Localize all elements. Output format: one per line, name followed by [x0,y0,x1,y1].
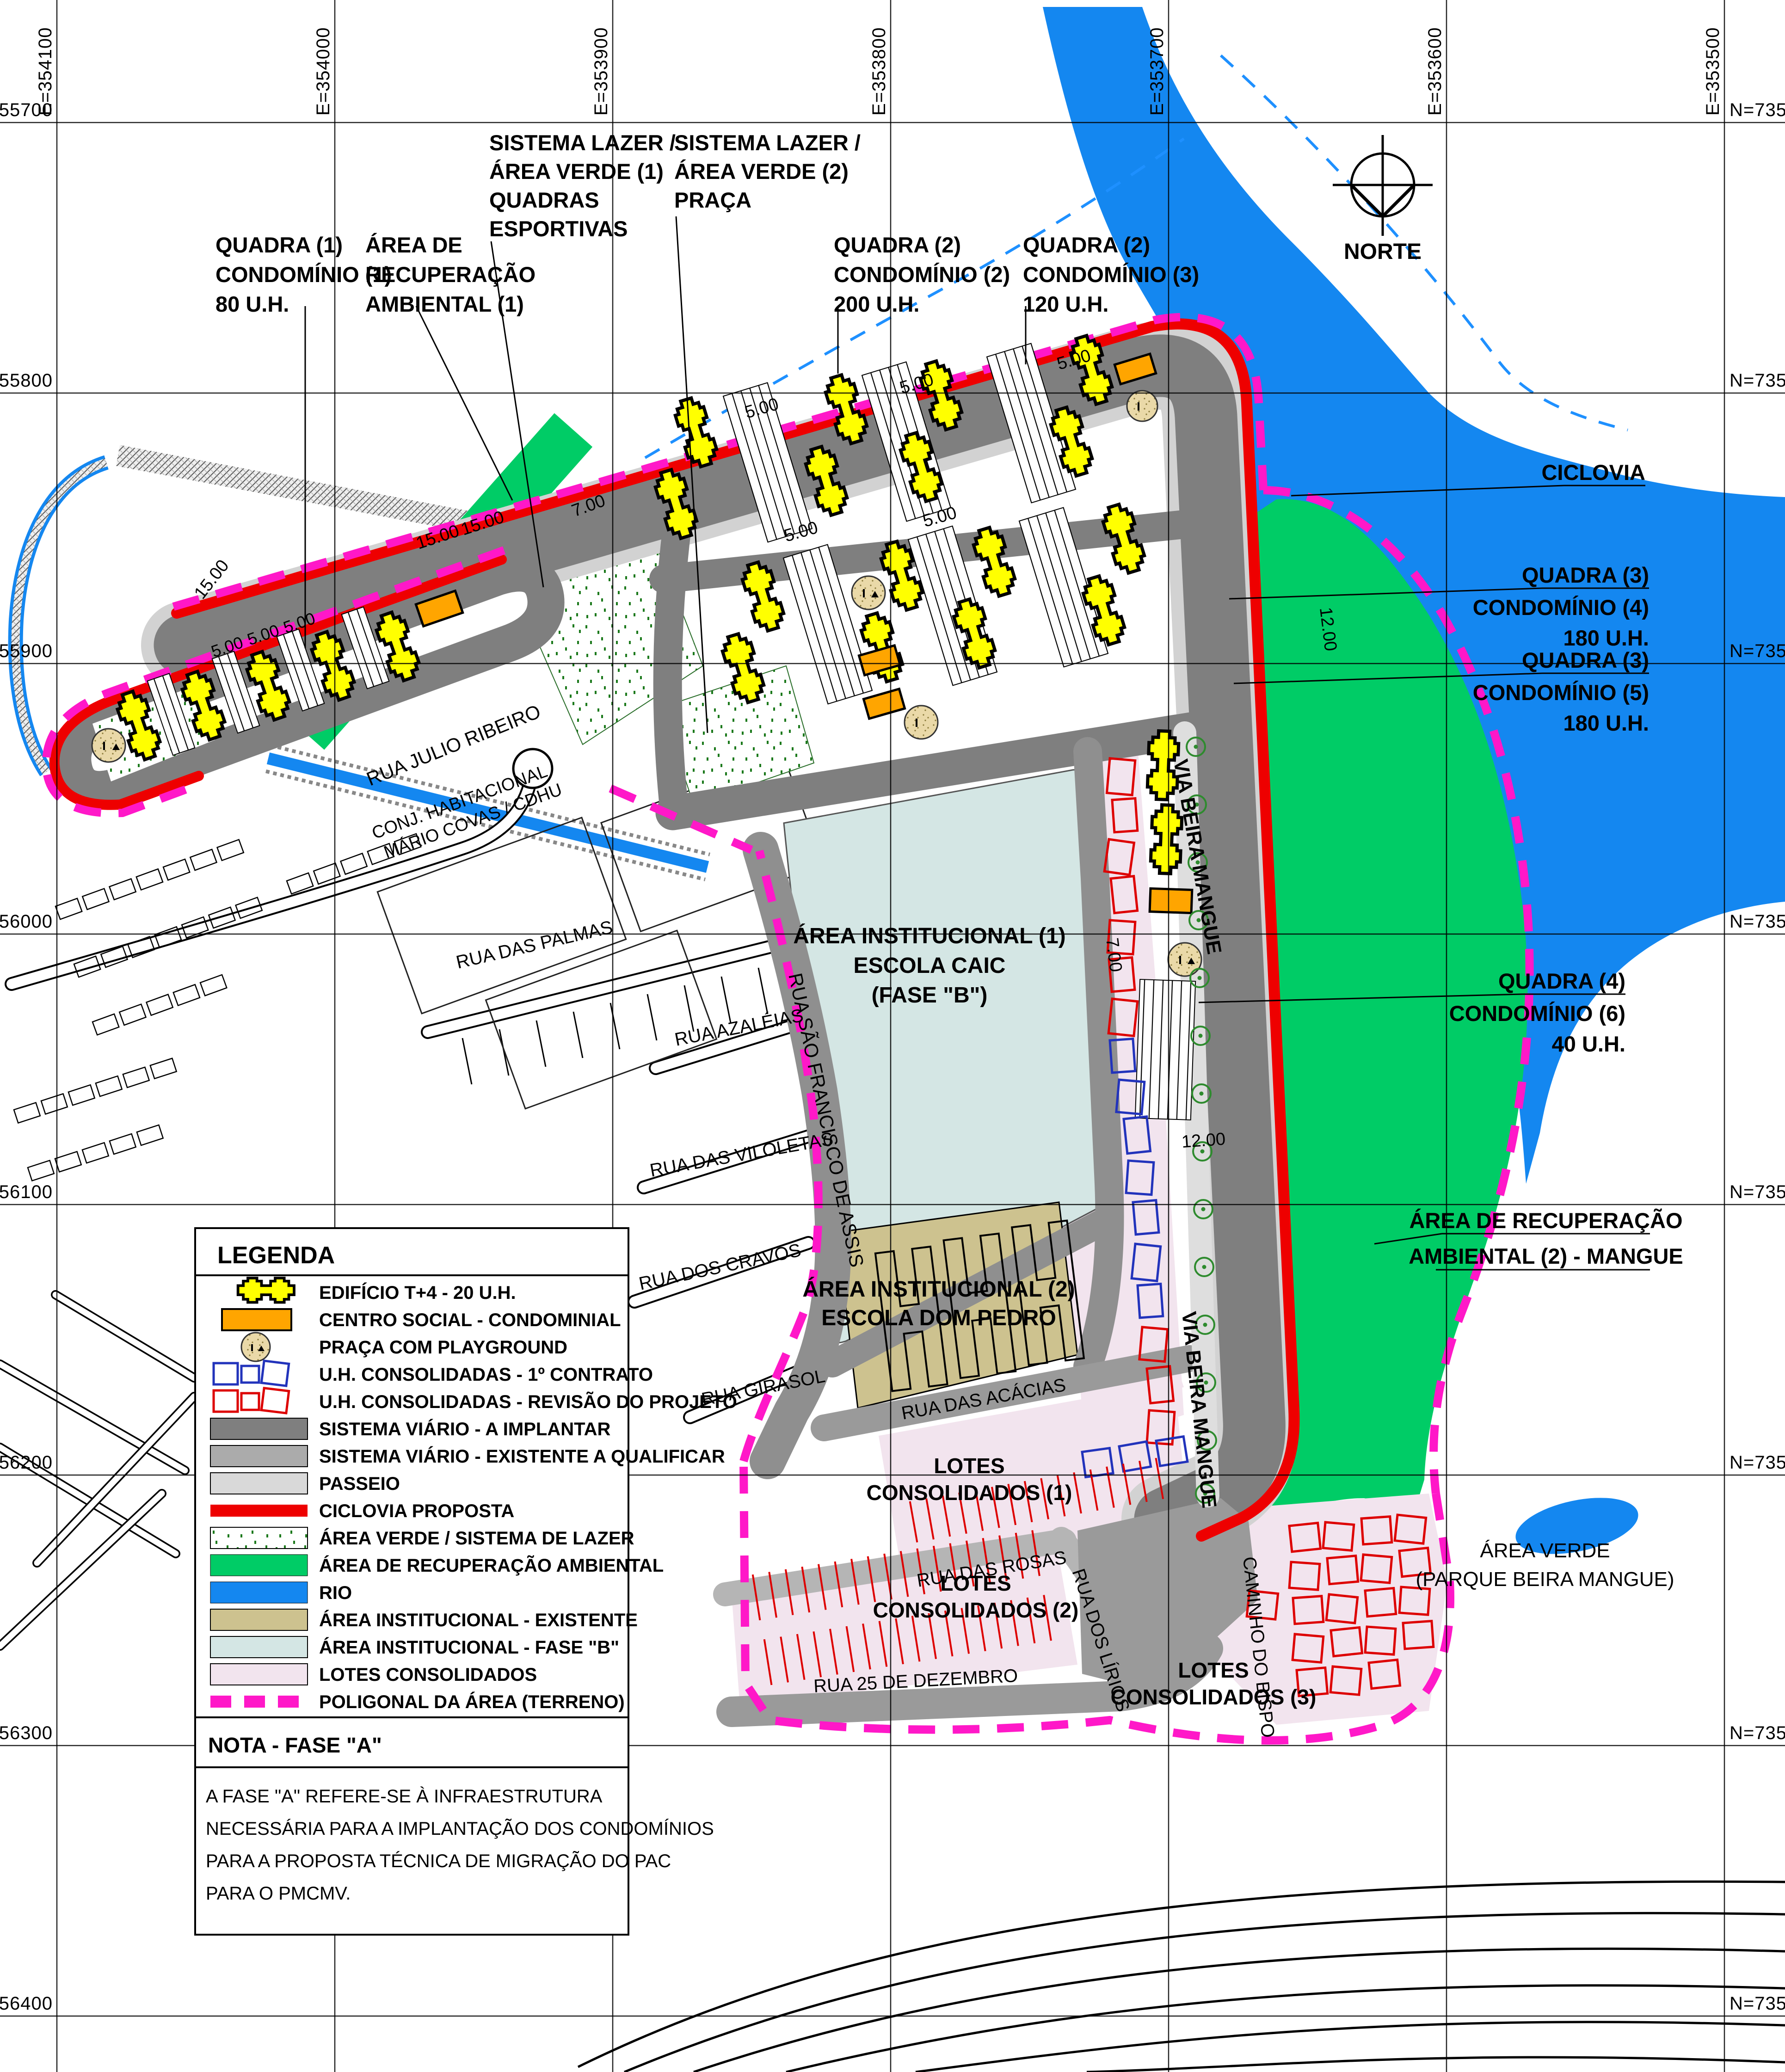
n-right-1: N=7355 [1730,370,1785,391]
n-right-3: N=7356 [1730,911,1785,932]
legend-icon-passeio [210,1473,308,1494]
quadra2a-l3: 200 U.H. [834,292,919,316]
quadra1-l3: 80 U.H. [215,292,289,316]
legend-label-10: ÁREA DE RECUPERAÇÃO AMBIENTAL [319,1555,664,1576]
legend-label-5: SISTEMA VIÁRIO - A IMPLANTAR [319,1419,610,1439]
n-left-5: N=7356200 [0,1452,53,1473]
quadra2b-l2: CONDOMÍNIO (3) [1023,262,1199,287]
lazer1-l1: SISTEMA LAZER / [489,130,676,155]
e-label-4: E=353700 [1147,27,1167,116]
n-left-1: N=7355800 [0,370,53,391]
legend-icon-praca [241,1333,270,1361]
compass-label: NORTE [1344,240,1422,264]
quadra3a-l2: CONDOMÍNIO (4) [1473,595,1649,620]
nota-line-3: PARA O PMCMV. [206,1883,351,1904]
legend-icon-viario-existente [210,1445,308,1467]
mangue-l1: ÁREA DE RECUPERAÇÃO [1409,1208,1682,1233]
callout-verde-parque: ÁREA VERDE (PARQUE BEIRA MANGUE) [1416,1539,1674,1591]
recup1-l3: AMBIENTAL (1) [365,292,524,316]
lotes3-l2: CONSOLIDADOS (3) [1111,1685,1317,1709]
nota-box: NOTA - FASE "A" A FASE "A" REFERE-SE À I… [195,1717,714,1935]
lotes1-l1: LOTES [934,1454,1004,1478]
quadra2b-l1: QUADRA (2) [1023,233,1150,257]
quadra1-l1: QUADRA (1) [215,233,343,257]
legend-icon-viario-implantar [210,1418,308,1439]
legend-icon-inst-faseb [210,1636,308,1658]
quadra3a-l1: QUADRA (3) [1522,563,1649,587]
legend-title: LEGENDA [217,1242,335,1269]
n-left-6: N=7356300 [0,1723,53,1743]
north-compass: NORTE [1333,135,1433,264]
n-right-4: N=73561 [1730,1182,1785,1202]
n-left-7: N=7356400 [0,1993,53,2014]
legend-label-7: PASSEIO [319,1474,400,1494]
lotes2-l2: CONSOLIDADOS (2) [873,1598,1079,1622]
lazer1-l3: QUADRAS [489,188,599,212]
legend-label-1: CENTRO SOCIAL - CONDOMINIAL [319,1310,621,1330]
callout-lazer2: SISTEMA LAZER / ÁREA VERDE (2) PRAÇA [674,130,861,212]
legend-label-8: CICLOVIA PROPOSTA [319,1501,514,1521]
e-label-1: E=354000 [313,27,333,116]
legend-icon-verde-lazer [210,1527,308,1549]
n-left-2: N=7355900 [0,641,53,661]
inst2-l1: ÁREA INSTITUCIONAL (2) [802,1277,1075,1302]
callout-lazer1: SISTEMA LAZER / ÁREA VERDE (1) QUADRAS E… [489,130,676,241]
highway-curves [578,1881,1785,2072]
quadra2a-l2: CONDOMÍNIO (2) [834,262,1010,287]
urban-plan-map: E=354100 E=354000 E=353900 E=353800 E=35… [0,0,1785,2072]
lazer2-l3: PRAÇA [674,188,751,212]
recup1-l1: ÁREA DE [365,233,462,257]
legend-label-6: SISTEMA VIÁRIO - EXISTENTE A QUALIFICAR [319,1446,725,1467]
quadra3b-l1: QUADRA (3) [1522,648,1649,672]
quadra3a-l3: 180 U.H. [1563,626,1649,650]
n-right-0: N=73557 [1730,100,1785,120]
street-palmas: RUA DAS PALMAS [454,917,615,973]
legend-icon-recuperacao [210,1555,308,1576]
mangue-l2: AMBIENTAL (2) - MANGUE [1409,1244,1683,1268]
verde-l2: (PARQUE BEIRA MANGUE) [1416,1568,1674,1591]
legend-label-0: EDIFÍCIO T+4 - 20 U.H. [319,1282,516,1303]
dim-12b: 12.00 [1181,1129,1226,1152]
legend-label-11: RIO [319,1583,352,1603]
n-right-7: N=7356 [1730,1993,1785,2014]
n-left-3: N=7356000 [0,911,53,932]
callout-quadra2a: QUADRA (2) CONDOMÍNIO (2) 200 U.H. [834,233,1010,316]
street-cravos: RUA DOS CRAVOS [637,1240,803,1294]
legend-label-4: U.H. CONSOLIDADAS - REVISÃO DO PROJETO [319,1391,737,1412]
nota-line-1: NECESSÁRIA PARA A IMPLANTAÇÃO DOS CONDOM… [206,1818,714,1839]
nota-line-2: PARA A PROPOSTA TÉCNICA DE MIGRAÇÃO DO P… [206,1851,671,1871]
legend-label-13: ÁREA INSTITUCIONAL - FASE "B" [319,1637,619,1658]
dim-7b: 7.00 [1102,937,1126,973]
callout-recuperacao1: ÁREA DE RECUPERAÇÃO AMBIENTAL (1) [365,233,535,316]
recup1-l2: RECUPERAÇÃO [365,262,535,287]
e-label-3: E=353800 [869,27,889,116]
legend-icon-lotes [210,1664,308,1685]
n-right-2: N=73559 [1730,641,1785,661]
legend-icon-centro-social [222,1309,291,1330]
nota-title: NOTA - FASE "A" [208,1733,382,1757]
legend-label-9: ÁREA VERDE / SISTEMA DE LAZER [319,1528,634,1549]
nota-line-0: A FASE "A" REFERE-SE À INFRAESTRUTURA [206,1786,603,1807]
n-right-6: N=73563 [1730,1723,1785,1743]
inst1-l3: (FASE "B") [872,983,988,1008]
legend-icon-ciclovia [210,1505,308,1517]
callout-ciclovia: CICLOVIA [1541,460,1645,485]
legend-label-15: POLIGONAL DA ÁREA (TERRENO) [319,1691,625,1712]
quadra2b-l3: 120 U.H. [1023,292,1108,316]
n-right-5: N=73562 [1730,1452,1785,1473]
legend-label-14: LOTES CONSOLIDADOS [319,1665,537,1685]
lazer2-l2: ÁREA VERDE (2) [674,159,849,184]
quadra4-l3: 40 U.H. [1552,1032,1625,1056]
verde-l1: ÁREA VERDE [1480,1539,1610,1562]
inst1-l1: ÁREA INSTITUCIONAL (1) [793,923,1065,948]
lotes1-l2: CONSOLIDADOS (1) [867,1481,1072,1505]
quadra3b-l3: 180 U.H. [1563,711,1649,735]
quadra2a-l1: QUADRA (2) [834,233,961,257]
quadra4-l1: QUADRA (4) [1498,969,1625,993]
quadra4-l2: CONDOMÍNIO (6) [1449,1001,1625,1026]
legend-label-2: PRAÇA COM PLAYGROUND [319,1337,567,1358]
legend-label-3: U.H. CONSOLIDADAS - 1º CONTRATO [319,1365,653,1385]
legend-label-12: ÁREA INSTITUCIONAL - EXISTENTE [319,1610,638,1630]
quadra3b-l2: CONDOMÍNIO (5) [1473,680,1649,705]
e-label-2: E=353900 [591,27,611,116]
inst2-l2: ESCOLA DOM PEDRO [821,1306,1056,1330]
e-label-5: E=353600 [1425,27,1445,116]
lazer2-l1: SISTEMA LAZER / [674,130,861,155]
road-connector-west [668,512,679,810]
street-viloletas: RUA DAS VILOLETAS [648,1129,835,1181]
n-left-4: N=7356100 [0,1182,53,1202]
legend-icon-inst-existente [210,1609,308,1630]
lazer1-l2: ÁREA VERDE (1) [489,159,664,184]
n-left-0: N=7355700 [0,100,53,120]
e-label-6: E=353500 [1703,27,1723,116]
lotes3-l1: LOTES [1178,1658,1249,1682]
inst1-l2: ESCOLA CAIC [854,953,1006,978]
lazer1-l4: ESPORTIVAS [489,216,628,241]
legend-icon-rio [210,1582,308,1603]
